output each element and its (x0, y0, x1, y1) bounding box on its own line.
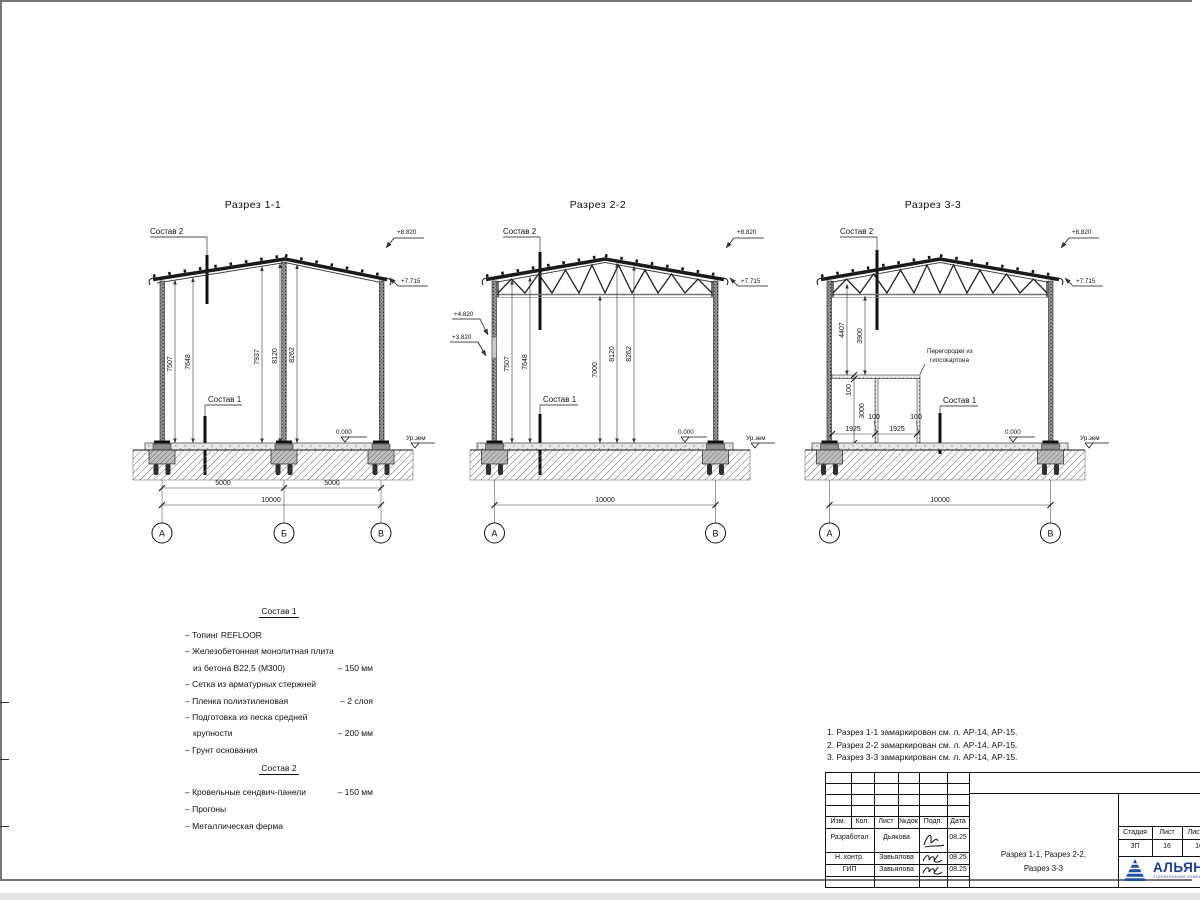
sheet-frame-left (0, 2, 2, 879)
tb-doc-title-line2: Разрез 3-3 (969, 862, 1118, 875)
ref-note: 3. Разрез 3-3 замаркирован см. л. АР-14,… (827, 751, 1017, 764)
note-line: – Железобетонная монолитная плита (185, 643, 373, 659)
tb-role-gip: ГИП (825, 866, 874, 873)
horizontal-partition-dims (829, 421, 920, 437)
zero-level-label: 0.000 (678, 429, 694, 436)
ground-level-label: Ур.зем (1080, 435, 1100, 442)
dim-label: 4407 (839, 322, 846, 338)
section-2-2-drawing: Разрез 2-2 Состав 2 +4.8 (440, 192, 800, 564)
dim-label: 3900 (857, 328, 864, 344)
tb-header-ndok: №док (898, 818, 919, 825)
frame-tick (0, 702, 9, 703)
elevation-eave: +7.715 (1065, 278, 1103, 286)
tb-header-kol: Кол. (851, 818, 874, 825)
elevation-label: +7.715 (741, 278, 761, 285)
elevation-label: +3.820 (452, 334, 472, 341)
elevation-label: +8.820 (1072, 229, 1092, 236)
composition-notes: Состав 1 – Топинг REFLOOR – Железобетонн… (185, 604, 373, 835)
company-logo: АЛЬЯНС строительная компания (1123, 858, 1200, 882)
dim-label: 100 (868, 414, 880, 421)
dim-label: 10000 (595, 497, 615, 504)
tb-sheet-value: 16 (1152, 843, 1182, 850)
section-1-1-drawing: Разрез 1-1 Состав 2 7507 76 (120, 192, 460, 564)
elevation-label: +7.715 (401, 278, 421, 285)
roof (149, 256, 391, 286)
logo-subtitle: строительная компания (1153, 874, 1200, 879)
tb-header-data: Дата (947, 818, 969, 825)
sostav1-label: Состав 1 (208, 395, 242, 404)
frame-tick (0, 826, 9, 827)
section-title: Разрез 2-2 (570, 199, 627, 211)
sostav1-label: Состав 1 (543, 395, 577, 404)
dim-label: 7000 (592, 362, 599, 378)
sostav2-label: Состав 2 (150, 227, 184, 236)
dim-label: 100 (910, 414, 922, 421)
truss (497, 265, 713, 298)
elevation-label: +8.820 (737, 229, 757, 236)
zero-level-label: 0.000 (1005, 429, 1021, 436)
sostav2-callout: Состав 2 (503, 227, 540, 330)
logo-triangle-icon (1123, 858, 1147, 882)
drawing-sheet: Разрез 1-1 Состав 2 7507 76 (0, 0, 1200, 900)
dim-label: 8262 (626, 346, 633, 362)
tb-date-developer: 08.25 (947, 834, 969, 841)
dim-label: 8120 (609, 346, 616, 362)
dim-label: 1925 (889, 426, 905, 433)
tb-name-ncontrol: Завьялова (874, 854, 919, 861)
elevation-label: +7.715 (1076, 278, 1096, 285)
elevation-ridge: +8.820 (1061, 229, 1099, 248)
tb-doc-title-line1: Разрез 1-1, Разрез 2-2, (969, 848, 1118, 861)
axis-label: В (712, 529, 718, 539)
sostav2-callout: Состав 2 (840, 227, 877, 330)
section-title: Разрез 1-1 (225, 199, 282, 211)
tb-header-stage: Стадия (1118, 829, 1152, 836)
signature-ncontrol (921, 853, 947, 864)
ground-level-mark: Ур.зем (1080, 435, 1109, 448)
note-line: – Металлическая ферма (185, 818, 373, 835)
sheet-frame-top (0, 0, 1192, 2)
dim-label: 7507 (504, 356, 511, 372)
note-line: – Пленка полиэтиленовая– 2 слоя (185, 693, 373, 709)
partition-callout: Перегородки из гипсокартона (920, 348, 973, 374)
sostav2-callout: Состав 2 (150, 227, 207, 304)
signature-developer (921, 829, 947, 850)
ground-level-label: Ур.зем (406, 435, 426, 442)
tb-stage-value: ЗП (1118, 843, 1152, 850)
axis-label: А (491, 529, 497, 539)
tb-name-developer: Дьякова (874, 834, 919, 841)
tb-header-list: Лист (874, 818, 898, 825)
note-line: крупности– 200 мм (185, 725, 373, 741)
note-line: из бетона В22,5 (М300)– 150 мм (185, 660, 373, 676)
tb-header-podp: Подп. (919, 818, 947, 825)
window-elevation-marks: +4.820 +3.820 (450, 311, 488, 356)
axis-label: Б (281, 529, 287, 539)
note-line: – Подготовка из песка средней (185, 709, 373, 725)
elevation-eave: +7.715 (390, 278, 428, 286)
note-line: – Прогоны (185, 801, 373, 818)
roof (817, 256, 1063, 286)
section-title: Разрез 3-3 (905, 199, 962, 211)
signature-gip (921, 865, 947, 876)
grid-bubbles: А В (820, 523, 1061, 543)
dim-label: 7507 (167, 356, 174, 372)
dim-label: 5000 (324, 480, 340, 487)
dim-label: 5000 (215, 480, 231, 487)
ref-note: 1. Разрез 1-1 замаркирован см. л. АР-14,… (827, 726, 1017, 739)
axis-label: А (826, 529, 832, 539)
tb-date-ncontrol: 08.25 (947, 854, 969, 861)
tb-role-ncontrol: Н. контр. (825, 854, 874, 861)
note-line: – Грунт основания (185, 742, 373, 758)
dim-label: 7648 (185, 354, 192, 370)
dim-label: 8262 (289, 347, 296, 363)
axis-label: А (159, 529, 165, 539)
zero-level-mark: 0.000 (678, 429, 707, 442)
note-line: – Кровельные сендвич-панели– 150 мм (185, 784, 373, 801)
sostav2-heading: Состав 2 (185, 761, 373, 775)
ref-note: 2. Разрез 2-2 замаркирован см. л. АР-14,… (827, 739, 1017, 752)
elevation-eave: +7.715 (730, 278, 768, 286)
sostav2-label: Состав 2 (840, 227, 874, 236)
page-edge (0, 893, 1200, 900)
note-line: – Топинг REFLOOR (185, 627, 373, 643)
ground-level-label: Ур.зем (746, 435, 766, 442)
zero-level-mark: 0.000 (1005, 429, 1035, 442)
dim-label: 100 (846, 384, 853, 396)
axis-label: В (1047, 529, 1053, 539)
dim-label: 7648 (522, 354, 529, 370)
tb-header-sheets: Листов (1182, 829, 1200, 836)
partition-label-line2: гипсокартона (930, 357, 969, 364)
tb-name-gip: Завьялова (874, 866, 919, 873)
axis-label: В (378, 529, 384, 539)
elevation-ridge: +8.820 (386, 229, 424, 248)
dim-label: 7937 (254, 349, 261, 365)
dim-label: 10000 (930, 497, 950, 504)
ground-level-mark: Ур.зем (406, 435, 435, 448)
logo-text: АЛЬЯНС (1153, 861, 1200, 874)
zero-level-label: 0.000 (336, 429, 352, 436)
dim-label: 1925 (845, 426, 861, 433)
section-3-3-drawing: Разрез 3-3 Состав 2 (770, 192, 1140, 564)
grid-bubbles: А В (485, 523, 726, 543)
tb-header-sheet: Лист (1152, 829, 1182, 836)
reference-notes: 1. Разрез 1-1 замаркирован см. л. АР-14,… (827, 726, 1017, 764)
dim-label: 8120 (272, 348, 279, 364)
dim-label: 10000 (261, 497, 281, 504)
elevation-label: +8.820 (397, 229, 417, 236)
tb-sheets-value: 16 (1182, 843, 1200, 850)
roof (482, 256, 728, 286)
truss (832, 265, 1048, 298)
zero-level-mark: 0.000 (336, 429, 367, 442)
window (492, 337, 497, 358)
partition-label-line1: Перегородки из (927, 348, 973, 355)
tb-role-developer: Разработал (825, 834, 874, 841)
tb-header-izm: Изм. (825, 818, 851, 825)
sostav2-label: Состав 2 (503, 227, 537, 236)
tb-date-gip: 08.25 (947, 866, 969, 873)
elevation-ridge: +8.820 (726, 229, 764, 248)
title-block: Изм. Кол. Лист №док Подп. Дата Разработа… (825, 772, 1200, 888)
elevation-label: +4.820 (454, 311, 474, 318)
dim-label: 3000 (859, 403, 866, 419)
frame-tick (0, 759, 9, 760)
note-line: – Сетка из арматурных стержней (185, 676, 373, 692)
sostav1-heading: Состав 1 (185, 604, 373, 618)
grid-bubbles: А Б В (152, 523, 391, 543)
sostav1-label: Состав 1 (943, 396, 977, 405)
